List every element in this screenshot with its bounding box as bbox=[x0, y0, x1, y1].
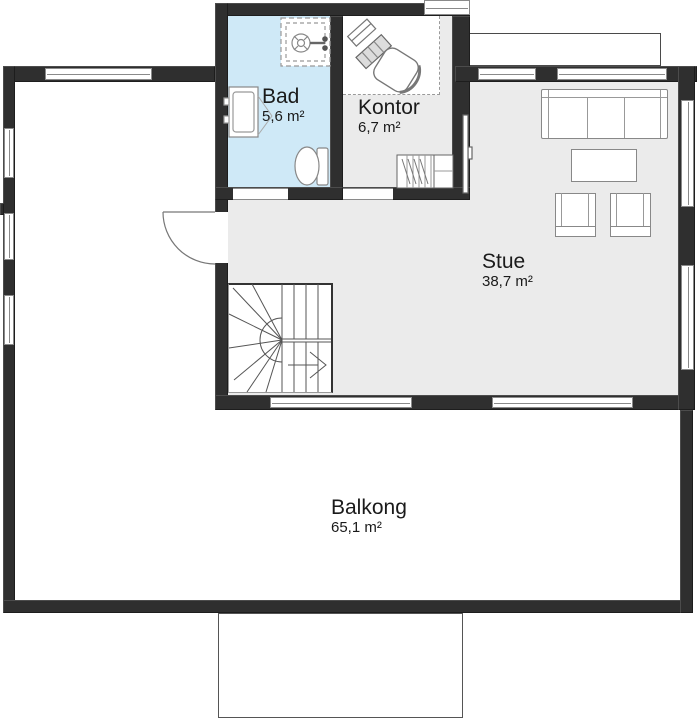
balkong-label-name: Balkong bbox=[331, 496, 407, 520]
kontor-label-name: Kontor bbox=[358, 96, 420, 120]
bad-door-opening[interactable] bbox=[233, 188, 288, 200]
bad-label: Bad 5,6 m² bbox=[262, 85, 305, 125]
window-balcony-top bbox=[45, 68, 152, 80]
railing-balcony-right bbox=[680, 410, 693, 613]
sofa-icon bbox=[541, 89, 668, 139]
sofa-cushion-divider bbox=[587, 98, 588, 138]
sofa-armrest-left bbox=[542, 90, 549, 138]
window-stue-top-b bbox=[557, 68, 667, 80]
stue-label-area: 38,7 m² bbox=[482, 274, 533, 291]
kontor-label: Kontor 6,7 m² bbox=[358, 96, 420, 136]
armchair-front bbox=[610, 226, 651, 237]
stue-label: Stue 38,7 m² bbox=[482, 250, 533, 290]
sofa-back-line bbox=[542, 90, 667, 98]
stue-label-name: Stue bbox=[482, 250, 533, 274]
coffee-table-icon bbox=[571, 149, 637, 182]
armchair-arm bbox=[643, 193, 644, 229]
wall-kontor-right bbox=[452, 16, 470, 200]
armchair-arm bbox=[588, 193, 589, 229]
staircase bbox=[228, 283, 333, 393]
roof-outline bbox=[468, 33, 661, 66]
armchair-icon bbox=[555, 193, 596, 237]
balkong-label: Balkong 65,1 m² bbox=[331, 496, 407, 536]
armchair-icon bbox=[610, 193, 651, 237]
window-stue-bottom-a bbox=[270, 397, 412, 408]
balcony-door-opening[interactable] bbox=[215, 212, 228, 263]
bad-label-area: 5,6 m² bbox=[262, 109, 305, 126]
armchair-arm bbox=[561, 193, 562, 229]
wall-bad-kontor-divider bbox=[330, 16, 343, 200]
sofa-cushion-divider bbox=[624, 98, 625, 138]
bad-label-name: Bad bbox=[262, 85, 305, 109]
lower-structure-outline bbox=[218, 613, 463, 718]
kontor-door-opening[interactable] bbox=[343, 188, 393, 200]
balkong-label-area: 65,1 m² bbox=[331, 520, 407, 537]
window-stue-right-a bbox=[681, 100, 694, 207]
window-stue-bottom-b bbox=[492, 397, 633, 408]
window-stue-top-a bbox=[478, 68, 536, 80]
window-balcony-left-c bbox=[4, 295, 14, 345]
window-stue-right-b bbox=[681, 265, 694, 370]
floor-plan: Bad 5,6 m² Kontor 6,7 m² Stue 38,7 m² Ba… bbox=[0, 0, 697, 720]
wall-house-left bbox=[215, 3, 228, 410]
armchair-arm bbox=[616, 193, 617, 229]
window-kontor-top bbox=[424, 0, 470, 15]
window-balcony-left-b bbox=[4, 213, 14, 260]
sofa-armrest-right bbox=[660, 90, 667, 138]
kontor-label-area: 6,7 m² bbox=[358, 120, 420, 137]
window-balcony-left-a bbox=[4, 128, 14, 178]
armchair-front bbox=[555, 226, 596, 237]
desk-zone bbox=[343, 16, 440, 95]
railing-balcony-bottom bbox=[3, 600, 693, 613]
